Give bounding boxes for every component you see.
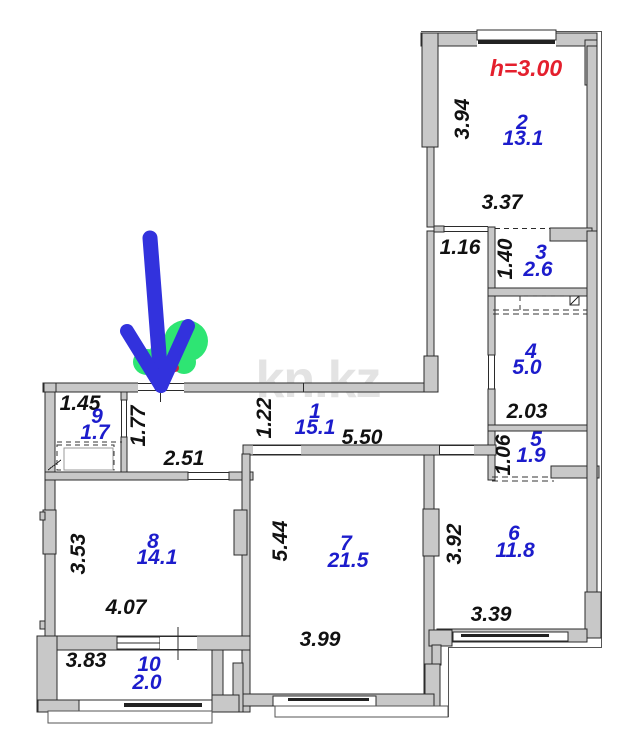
svg-text:5.50: 5.50 [342,426,383,449]
svg-text:3.53: 3.53 [67,533,90,574]
svg-text:15.1: 15.1 [295,416,336,439]
svg-text:h=3.00: h=3.00 [490,55,562,81]
svg-text:3.39: 3.39 [471,603,512,626]
svg-text:3.83: 3.83 [66,649,107,672]
svg-text:5.0: 5.0 [512,356,542,379]
svg-text:5.44: 5.44 [269,520,292,561]
svg-text:4.07: 4.07 [105,596,148,619]
svg-text:1.22: 1.22 [253,397,276,438]
svg-text:3.92: 3.92 [443,523,466,564]
svg-text:2.03: 2.03 [506,400,548,423]
svg-text:2.0: 2.0 [131,671,162,694]
svg-text:11.8: 11.8 [495,539,535,562]
svg-text:1.40: 1.40 [494,238,517,279]
svg-text:2.51: 2.51 [163,447,205,470]
svg-text:3.99: 3.99 [300,628,341,651]
svg-text:1.7: 1.7 [80,421,111,444]
svg-text:21.5: 21.5 [327,549,369,572]
svg-text:1.06: 1.06 [492,434,515,475]
svg-text:13.1: 13.1 [503,127,544,150]
svg-text:1.77: 1.77 [127,404,150,446]
svg-text:3.37: 3.37 [482,191,524,214]
svg-text:3.94: 3.94 [451,98,474,139]
svg-text:2.6: 2.6 [522,258,553,281]
svg-text:14.1: 14.1 [137,546,178,569]
svg-text:1.9: 1.9 [516,444,546,467]
svg-text:1.16: 1.16 [440,236,481,259]
